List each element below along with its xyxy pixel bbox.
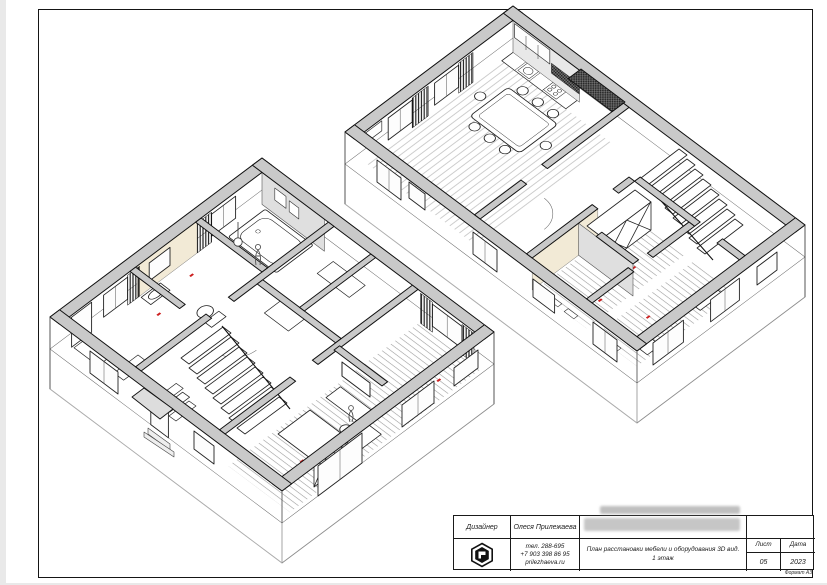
phone-2: +7 903 398 86 95 <box>520 551 569 559</box>
designer-name-text: Олеся Прилежаева <box>514 524 577 531</box>
drawing-title-text: План расстановки мебели и оборудования 3… <box>586 546 740 563</box>
date-label-cell: Дата <box>781 539 815 553</box>
designer-name: Олеся Прилежаева <box>511 516 580 539</box>
sheet-label-cell: Лист <box>747 539 781 553</box>
contact-cell: тел. 288-695 +7 903 398 86 95 prilezhaev… <box>511 539 580 571</box>
date-value-text: 2023 <box>790 559 806 566</box>
phone-1: тел. 288-695 <box>526 543 565 551</box>
sheet-number-cell: 05 <box>747 553 781 571</box>
empty-cell <box>747 516 815 539</box>
designer-label-text: Дизайнер <box>466 524 497 531</box>
format-label: Формат А3 <box>720 570 812 576</box>
floorplan-3d-drawing <box>0 0 827 585</box>
date-value-cell: 2023 <box>781 553 815 571</box>
designer-label: Дизайнер <box>454 516 511 539</box>
drawing-sheet-page: Дизайнер Олеся Прилежаева тел. 288-695 +… <box>0 0 827 585</box>
website-link[interactable]: prilezhaeva.ru <box>525 559 565 567</box>
sheet-label-text: Лист <box>755 541 771 549</box>
drawing-title-cell: План расстановки мебели и оборудования 3… <box>580 539 747 571</box>
redacted-bar <box>584 518 740 531</box>
format-label-text: Формат А3 <box>785 570 812 576</box>
sheet-number-text: 05 <box>760 559 768 566</box>
designer-logo <box>469 542 495 568</box>
date-label-text: Дата <box>790 541 807 549</box>
logo-cell <box>454 539 511 571</box>
redacted-bar <box>600 506 740 514</box>
